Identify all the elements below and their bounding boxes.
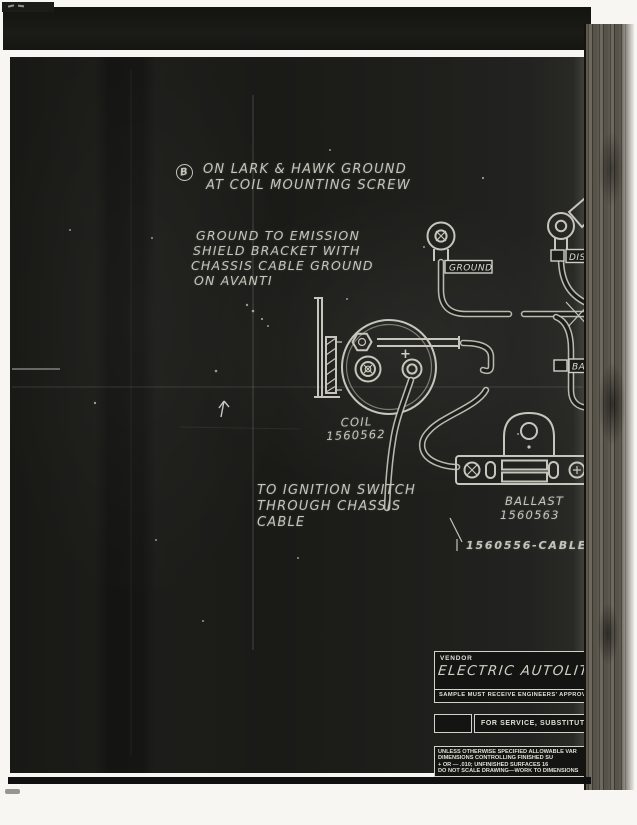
ground-note-line4: ON AVANTI (194, 273, 374, 288)
title-block: VENDOR ELECTRIC AUTOLITE SAMPLE MUST REC… (434, 651, 587, 777)
cable-callout: 1560556-CABLE (466, 539, 587, 552)
scanned-blueprint-page: GROUND DIST BAL (0, 0, 637, 825)
ignition-note: TO IGNITION SWITCH THROUGH CHASSIS CABLE (257, 483, 416, 531)
title-block-gap (434, 703, 587, 714)
binding-strip (584, 24, 635, 790)
bottom-smudge (5, 789, 20, 794)
service-substitute-note: FOR SERVICE, SUBSTITUTE (474, 714, 587, 733)
previous-page-edge (3, 7, 591, 50)
sample-approval-note: SAMPLE MUST RECEIVE ENGINEERS' APPROV (434, 690, 587, 703)
note-b-line1: ON LARK & HAWK GROUND (203, 162, 411, 178)
ignition-note-line2: THROUGH CHASSIS (257, 499, 416, 515)
title-block-gap (434, 733, 587, 746)
ground-note-line3: CHASSIS CABLE GROUND (191, 258, 374, 273)
fine-print-box: UNLESS OTHERWISE SPECIFIED ALLOWABLE VAR… (434, 746, 599, 777)
ballast-label: BALLAST 1560563 (500, 495, 564, 522)
bottom-edge-line (8, 777, 591, 784)
circled-b-marker: B (175, 163, 194, 182)
vendor-box: VENDOR ELECTRIC AUTOLITE (434, 651, 587, 690)
note-b: B ON LARK & HAWK GROUND AT COIL MOUNTING… (176, 162, 411, 193)
fine-print-line4: DO NOT SCALE DRAWING—WORK TO DIMENSIONS (438, 768, 598, 774)
ground-note: GROUND TO EMISSION SHIELD BRACKET WITH C… (196, 228, 374, 288)
coil-label: COIL 1560562 (326, 415, 386, 443)
ignition-note-line3: CABLE (257, 515, 416, 531)
ballast-name: BALLAST (505, 495, 564, 509)
empty-cell (434, 714, 472, 733)
service-row: FOR SERVICE, SUBSTITUTE (434, 714, 587, 733)
ground-note-line1: GROUND TO EMISSION (196, 228, 374, 243)
coil-part-number: 1560562 (326, 428, 386, 443)
scan-corner-mark (2, 2, 54, 12)
ground-note-line2: SHIELD BRACKET WITH (193, 243, 374, 258)
vendor-value: ELECTRIC AUTOLITE (437, 663, 587, 679)
ignition-note-line1: TO IGNITION SWITCH (257, 483, 416, 499)
note-b-line2: AT COIL MOUNTING SCREW (206, 178, 411, 194)
vendor-label: VENDOR (440, 655, 586, 662)
ballast-part-number: 1560563 (500, 509, 564, 523)
